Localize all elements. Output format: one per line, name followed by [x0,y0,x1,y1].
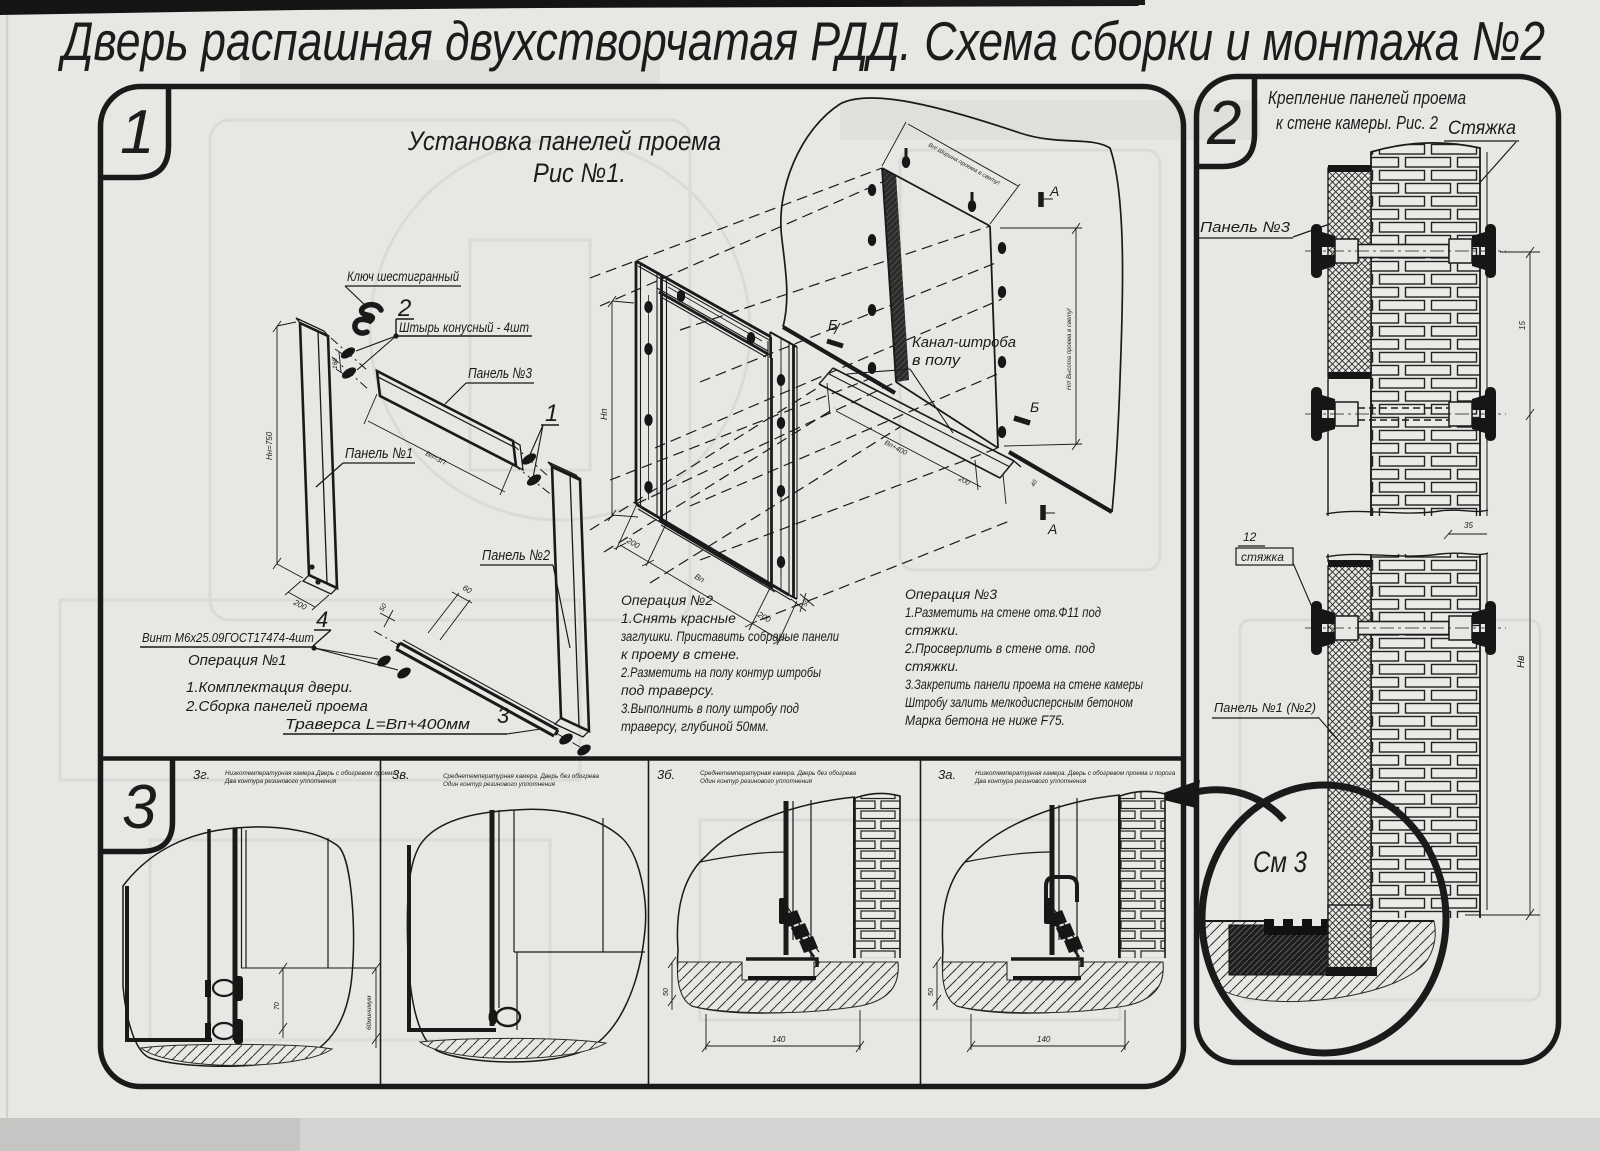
svg-text:Траверса L=Bп+400мм: Траверса L=Bп+400мм [285,716,470,733]
svg-text:См 3: См 3 [1253,846,1307,879]
svg-text:2.Разметить на полу контур штр: 2.Разметить на полу контур штробы [620,664,821,680]
svg-text:3а.: 3а. [938,767,956,782]
svg-text:2.Сборка панелей проема: 2.Сборка панелей проема [185,698,368,715]
svg-text:1.Комплектация двери.: 1.Комплектация двери. [186,679,353,696]
svg-text:140: 140 [772,1035,786,1044]
svg-text:Hн=750: Hн=750 [265,431,274,460]
svg-text:в полу: в полу [912,352,962,369]
svg-text:Марка бетона не ниже F75.: Марка бетона не ниже F75. [905,712,1065,728]
svg-text:Ключ шестигранный: Ключ шестигранный [347,269,459,284]
svg-text:Штробу залить мелкодисперсным: Штробу залить мелкодисперсным бетоном [905,694,1133,710]
svg-text:Hп: Hп [599,409,609,420]
svg-text:Два контура резинового уплотне: Два контура резинового уплотнения [224,778,337,785]
svg-text:4: 4 [316,607,328,632]
svg-text:Панель №3: Панель №3 [1200,219,1291,236]
svg-text:3.Выполнить в полу штробу под: 3.Выполнить в полу штробу под [621,700,799,716]
svg-text:140: 140 [1037,1035,1051,1044]
svg-text:2.Просверлить в стене отв. п: 2.Просверлить в стене отв. под [904,640,1095,656]
svg-text:Дверь распашная двухстворчатая: Дверь распашная двухстворчатая РДД. Схем… [57,10,1545,72]
svg-text:стяжки.: стяжки. [905,622,959,638]
svg-text:Hп! Высота проема в свету!: Hп! Высота проема в свету! [1067,308,1073,390]
svg-text:Один контур резинового уплотне: Один контур резинового уплотнения [443,780,556,788]
svg-text:3: 3 [497,703,510,728]
svg-text:Два контура резинового уплотне: Два контура резинового уплотнения [974,778,1087,785]
svg-text:под траверсу.: под траверсу. [621,682,715,698]
svg-text:Низкотемпературная камера. Две: Низкотемпературная камера. Дверь с обогр… [975,769,1176,777]
svg-text:Низкотемпературная камера.Двер: Низкотемпературная камера.Дверь с обогре… [225,769,396,777]
svg-text:3: 3 [122,773,156,842]
svg-text:1: 1 [545,400,558,427]
svg-text:50: 50 [663,988,670,996]
svg-text:Штырь конусный - 4шт: Штырь конусный - 4шт [399,320,529,335]
svg-text:Операция №2: Операция №2 [621,592,713,608]
svg-text:Винт М6х25.09ГОСТ17474-4шт: Винт М6х25.09ГОСТ17474-4шт [142,630,314,645]
svg-text:А: А [1047,521,1057,537]
svg-text:3г.: 3г. [193,767,210,782]
svg-text:Б: Б [828,317,838,334]
svg-text:Канал-штроба: Канал-штроба [912,334,1016,351]
svg-text:Операция №1: Операция №1 [188,652,287,669]
svg-text:Панель №1: Панель №1 [345,445,413,462]
svg-text:160: 160 [332,358,339,369]
svg-text:Один контур резинового уплотне: Один контур резинового уплотнения [700,777,813,785]
svg-text:Операция №3: Операция №3 [905,586,997,602]
svg-text:15: 15 [1518,321,1527,330]
svg-text:стяжки.: стяжки. [905,658,959,674]
svg-text:3.Закрепить панели проема на с: 3.Закрепить панели проема на стене камер… [905,676,1144,692]
svg-text:А: А [1049,183,1059,199]
svg-text:2: 2 [397,295,411,322]
svg-text:Рис №1.: Рис №1. [533,158,626,188]
svg-text:Установка панелей проема: Установка панелей проема [407,126,721,156]
svg-text:3в.: 3в. [392,767,410,782]
svg-text:Стяжка: Стяжка [1448,118,1516,139]
svg-text:к проему в стене.: к проему в стене. [621,646,740,662]
svg-text:стяжка: стяжка [1241,550,1284,564]
svg-text:Среднетемпературная камера. Дв: Среднетемпературная камера. Дверь без об… [443,772,600,780]
svg-text:траверсу, глубиной 50мм.: траверсу, глубиной 50мм. [621,718,769,734]
svg-text:Панель №2: Панель №2 [482,547,551,564]
svg-text:70: 70 [274,1002,281,1010]
svg-text:заглушки. Приставить собраные: заглушки. Приставить собраные панели [620,628,839,644]
svg-text:1: 1 [120,98,154,167]
svg-text:50: 50 [928,988,935,996]
svg-text:Панель №3: Панель №3 [468,365,533,382]
svg-text:1.Разметить на стене отв.Ф11 п: 1.Разметить на стене отв.Ф11 под [905,604,1101,620]
svg-text:Hв: Hв [1516,656,1527,668]
svg-text:3б.: 3б. [657,767,675,782]
svg-text:60минимум: 60минимум [366,995,373,1030]
svg-text:к стене камеры. Рис. 2: к стене камеры. Рис. 2 [1276,112,1439,133]
svg-text:Среднетемпературная камера. Дв: Среднетемпературная камера. Дверь без об… [700,769,857,777]
svg-text:1.Снять красные: 1.Снять красные [621,610,736,626]
svg-text:35: 35 [1464,521,1473,530]
svg-text:2: 2 [1206,89,1241,158]
svg-text:Крепление панелей проема: Крепление панелей проема [1268,87,1466,108]
svg-text:Б: Б [1030,399,1039,415]
svg-text:12: 12 [1243,530,1257,544]
svg-text:Панель №1 (№2): Панель №1 (№2) [1214,700,1316,715]
